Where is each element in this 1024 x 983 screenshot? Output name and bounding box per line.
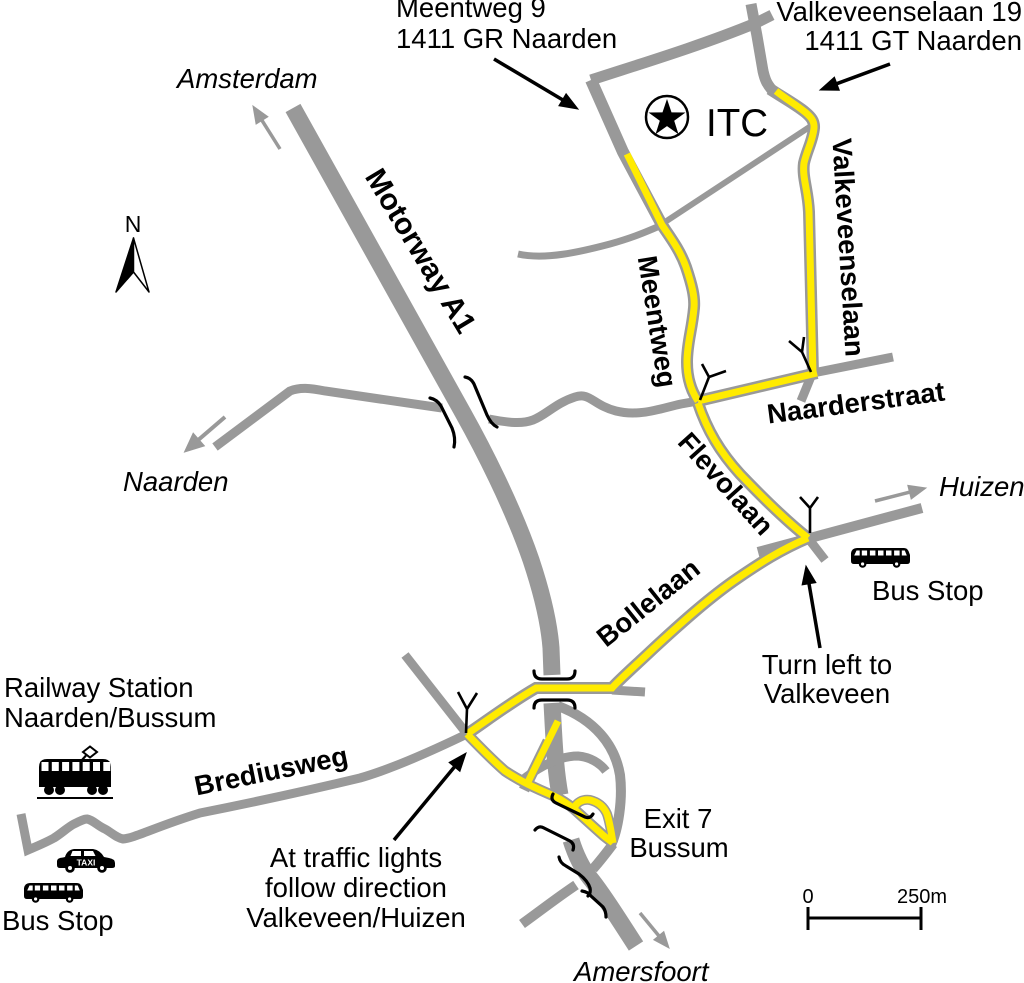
svg-text:Bussum: Bussum	[629, 832, 728, 863]
svg-text:Exit 7: Exit 7	[644, 803, 713, 834]
svg-text:Bus Stop: Bus Stop	[2, 905, 114, 936]
svg-text:Naarden/Bussum: Naarden/Bussum	[4, 702, 216, 733]
svg-text:1411 GT Naarden: 1411 GT Naarden	[804, 25, 1022, 56]
svg-text:Valkeveenselaan 19: Valkeveenselaan 19	[776, 0, 1022, 27]
svg-text:At traffic lights: At traffic lights	[270, 842, 442, 873]
svg-text:Meentweg 9: Meentweg 9	[396, 0, 546, 23]
svg-text:N: N	[125, 211, 142, 237]
svg-text:Bus Stop: Bus Stop	[872, 575, 984, 606]
svg-text:TAXI: TAXI	[77, 858, 96, 868]
svg-text:1411 GR Naarden: 1411 GR Naarden	[396, 23, 617, 54]
svg-text:Amersfoort: Amersfoort	[572, 956, 710, 983]
svg-text:250m: 250m	[897, 886, 947, 908]
svg-text:ITC: ITC	[706, 102, 768, 145]
svg-text:Valkeveen/Huizen: Valkeveen/Huizen	[246, 902, 466, 933]
svg-text:Huizen: Huizen	[939, 471, 1024, 502]
svg-text:Valkeveen: Valkeveen	[764, 678, 890, 709]
svg-text:Railway Station: Railway Station	[4, 672, 194, 703]
svg-text:Turn left to: Turn left to	[762, 649, 892, 680]
svg-text:Amsterdam: Amsterdam	[175, 63, 318, 94]
svg-text:0: 0	[802, 886, 813, 908]
svg-text:Naarden: Naarden	[123, 466, 229, 497]
svg-text:follow direction: follow direction	[265, 872, 447, 903]
